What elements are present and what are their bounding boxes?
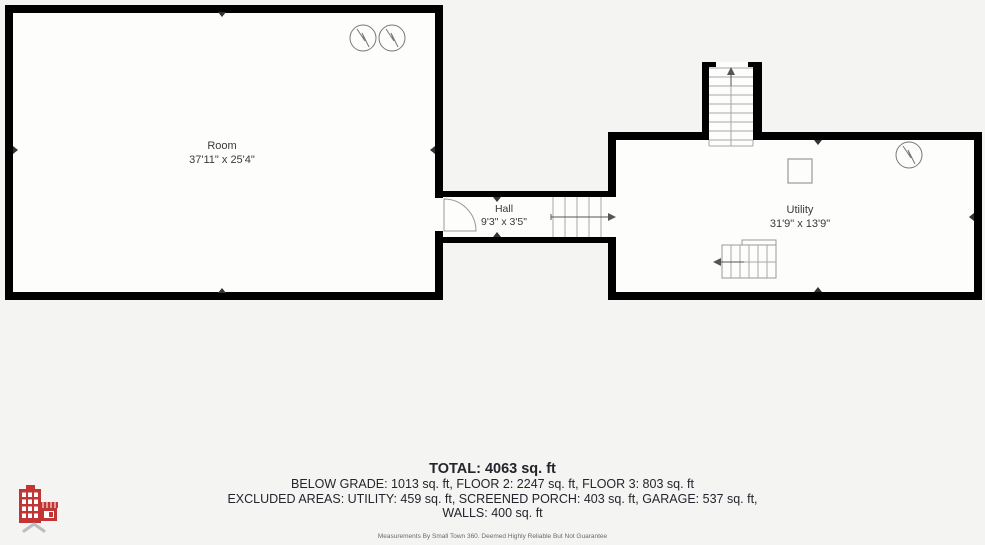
wall-areas: WALLS: 400 sq. ft [0,506,985,521]
door-opening [434,198,444,231]
excluded-areas: EXCLUDED AREAS: UTILITY: 459 sq. ft, SCR… [0,492,985,507]
disclaimer-text: Measurements By Small Town 360. Deemed H… [0,533,985,540]
column-square [788,159,812,183]
utility-outline [608,132,982,300]
room-outline [5,5,443,300]
floor-areas: BELOW GRADE: 1013 sq. ft, FLOOR 2: 2247 … [0,477,985,492]
staircase-switchback [713,240,776,278]
total-area: TOTAL: 4063 sq. ft [0,461,985,477]
chevron-up-icon [24,524,44,531]
staircase-up [702,62,762,146]
floor-plan-page: Room 37'11" x 25'4" Hall 9'3" x 3'5" Uti… [0,0,985,545]
area-summary: TOTAL: 4063 sq. ft BELOW GRADE: 1013 sq.… [0,461,985,521]
